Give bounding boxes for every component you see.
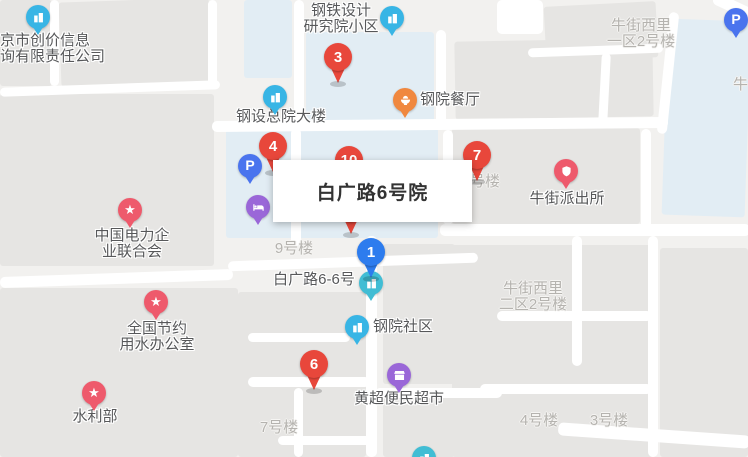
- poi-marker-national-water-saving-office[interactable]: ★: [144, 290, 168, 314]
- marker-tail: [731, 30, 741, 38]
- bowl-icon: [399, 94, 412, 107]
- road: [208, 0, 217, 88]
- label-national-water-saving-office: 全国节约用水办公室: [119, 321, 194, 353]
- poi-marker-niujie-police-station[interactable]: [554, 159, 578, 183]
- road: [572, 236, 582, 366]
- marker-tail: [387, 28, 397, 36]
- poi-marker-hotel[interactable]: [246, 195, 270, 219]
- marker-tail: [151, 312, 161, 320]
- road: [641, 129, 651, 229]
- pin-number: 6: [300, 350, 328, 378]
- label-baiguanglu-6-6: 白广路6-6号: [273, 272, 355, 288]
- building-icon: [269, 91, 282, 104]
- marker-tail: [89, 403, 99, 411]
- result-pin-3[interactable]: 3: [324, 43, 352, 87]
- road: [480, 384, 652, 394]
- marker-tail: [253, 217, 263, 225]
- pin-shadow: [330, 81, 346, 87]
- label-9haolou: 9号楼: [275, 241, 313, 257]
- poi-marker-steel-design-institute[interactable]: [380, 6, 404, 30]
- label-niu-cutoff: 牛: [733, 77, 748, 93]
- label-steel-hq-building: 钢设总院大楼: [236, 109, 326, 125]
- road: [648, 236, 658, 457]
- marker-tail: [352, 337, 362, 345]
- label-gangyuan-community: 钢院社区: [373, 319, 433, 335]
- marker-tail: [245, 176, 255, 184]
- poi-marker-company-beijing-chuangjia[interactable]: [26, 5, 50, 29]
- poi-marker-ministry-of-water-resources[interactable]: ★: [82, 381, 106, 405]
- road: [248, 333, 350, 342]
- road: [497, 0, 543, 34]
- marker-tail: [270, 107, 280, 115]
- label-gangyuan-canteen: 钢院餐厅: [420, 92, 480, 108]
- marker-tail: [33, 27, 43, 35]
- pin-number: 4: [259, 132, 287, 160]
- road: [440, 224, 748, 236]
- parking-icon: P: [731, 11, 740, 29]
- selected-poi-title: 白广路6号院: [317, 178, 429, 205]
- result-pin-1[interactable]: 1: [357, 238, 385, 282]
- building-icon: [386, 12, 399, 25]
- road: [278, 436, 372, 445]
- building-block: [660, 248, 748, 457]
- bed-icon: [252, 201, 265, 214]
- star-icon: ★: [124, 201, 136, 219]
- building-icon: [351, 321, 364, 334]
- star-icon: ★: [88, 384, 100, 402]
- label-4haolou: 4号楼: [520, 413, 558, 429]
- poi-marker-gangyuan-community[interactable]: [345, 315, 369, 339]
- marker-tail: [366, 293, 376, 301]
- label-3haolou: 3号楼: [590, 413, 628, 429]
- label-niujie-xili-yiqu: 牛街西里一区2号楼: [607, 18, 675, 50]
- map-canvas[interactable]: 京市创价信息询有限责任公司钢铁设计研究院小区钢设总院大楼钢院餐厅牛街西里一区2号…: [0, 0, 748, 457]
- building-block: [0, 288, 238, 457]
- label-niujie-police-station: 牛街派出所: [529, 191, 604, 207]
- label-niujie-xili-erqu: 牛街西里二区2号楼: [499, 281, 567, 313]
- pin-number: 1: [357, 238, 385, 266]
- police-badge-icon: [560, 165, 573, 178]
- marker-tail: [125, 220, 135, 228]
- marker-tail: [400, 110, 410, 118]
- label-steel-design-institute: 钢铁设计研究院小区: [303, 3, 378, 35]
- pin-shadow: [306, 388, 322, 394]
- parking-icon: P: [245, 157, 254, 175]
- result-pin-6[interactable]: 6: [300, 350, 328, 394]
- road: [436, 30, 446, 128]
- marker-tail: [394, 385, 404, 393]
- building-icon: [32, 11, 45, 24]
- star-icon: ★: [150, 293, 162, 311]
- poi-marker-huangchao-supermarket[interactable]: [387, 363, 411, 387]
- poi-marker-steel-hq-building[interactable]: [263, 85, 287, 109]
- label-7haolou: 7号楼: [260, 420, 298, 436]
- pin-shadow: [363, 276, 379, 282]
- road: [0, 269, 233, 288]
- label-huangchao-supermarket: 黄超便民超市: [354, 391, 444, 407]
- shop-icon: [393, 369, 406, 382]
- label-china-electricity-council: 中国电力企业联合会: [94, 228, 169, 260]
- building-icon: [418, 452, 431, 457]
- poi-marker-parking-top-right[interactable]: P: [724, 8, 748, 32]
- poi-marker-gangyuan-canteen[interactable]: [393, 88, 417, 112]
- pin-number: 3: [324, 43, 352, 71]
- selected-poi-infobox[interactable]: 白广路6号院: [273, 160, 472, 222]
- label-company-beijing-chuangjia: 京市创价信息询有限责任公司: [0, 33, 105, 65]
- poi-marker-china-electricity-council[interactable]: ★: [118, 198, 142, 222]
- label-ministry-of-water-resources: 水利部: [72, 409, 117, 425]
- building-block: [244, 0, 292, 78]
- marker-tail: [561, 181, 571, 189]
